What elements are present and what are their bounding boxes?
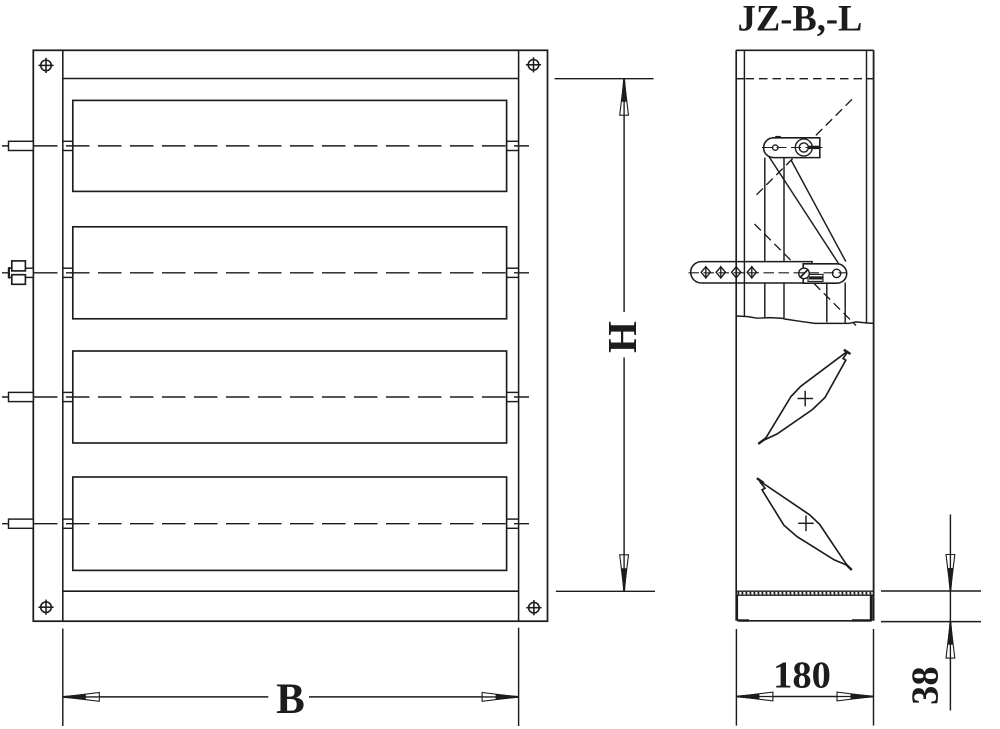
svg-text:JZ-B,-L: JZ-B,-L xyxy=(738,0,863,39)
svg-text:B: B xyxy=(276,676,305,723)
svg-text:H: H xyxy=(599,321,645,353)
svg-text:180: 180 xyxy=(773,655,831,697)
svg-text:38: 38 xyxy=(905,666,947,705)
